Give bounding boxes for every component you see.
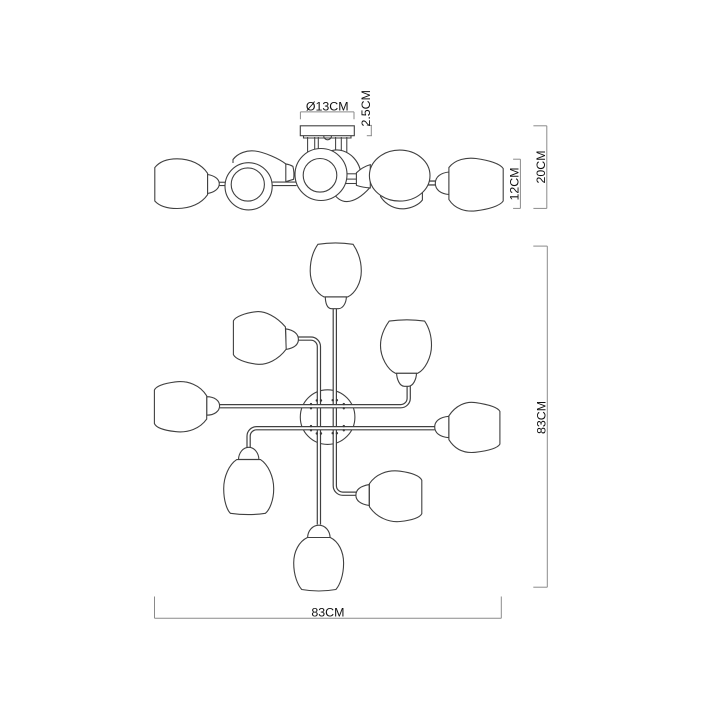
svg-text:2.5CM: 2.5CM	[359, 90, 373, 127]
svg-text:12CM: 12CM	[507, 167, 521, 200]
svg-text:Ø13CM: Ø13CM	[306, 99, 349, 113]
svg-text:20CM: 20CM	[534, 150, 548, 183]
svg-text:83CM: 83CM	[311, 606, 344, 620]
svg-text:83CM: 83CM	[534, 401, 548, 434]
